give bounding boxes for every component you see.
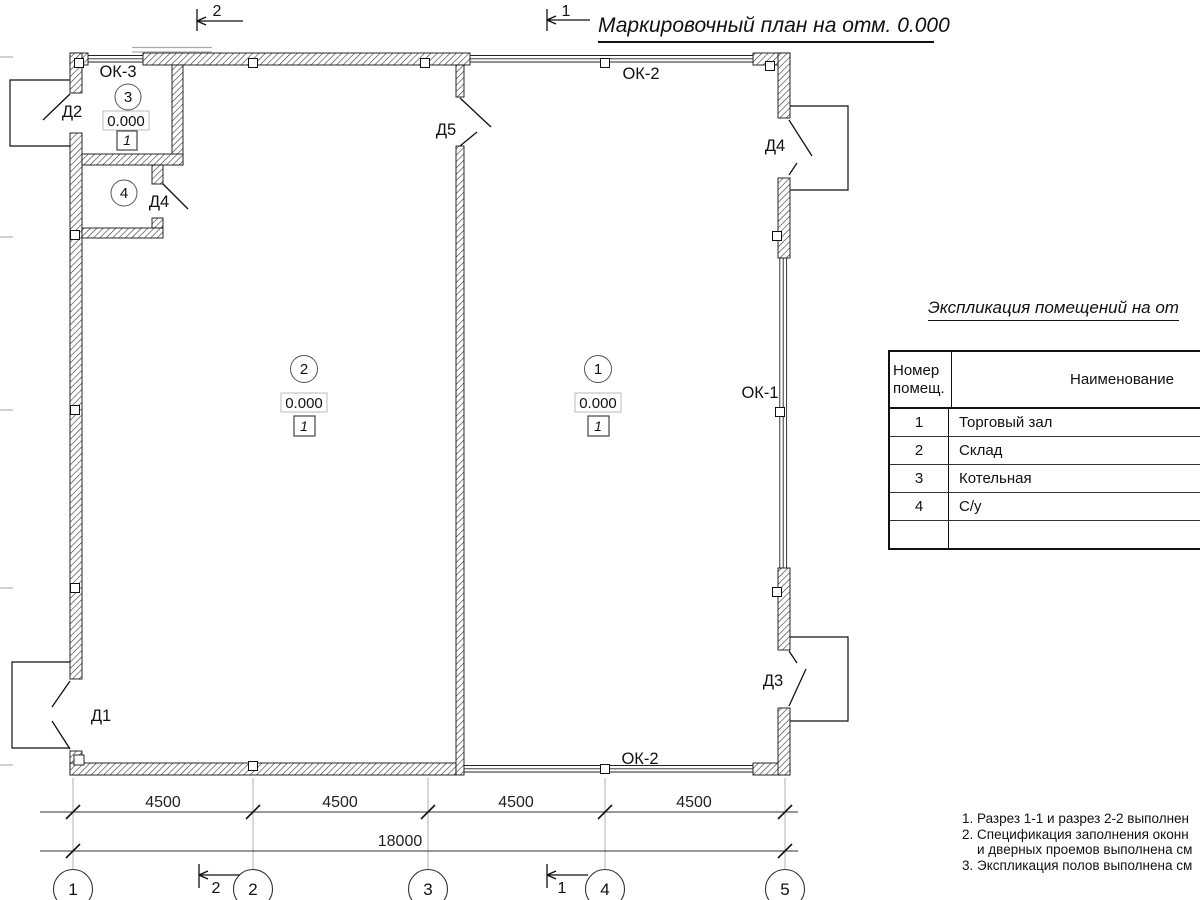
room-1-floor-type: 1: [594, 418, 602, 434]
room-2-elevation: 0.000: [285, 395, 323, 412]
section-markers: [197, 9, 590, 888]
dim-4500-2: 4500: [322, 794, 358, 811]
axis-2: 2: [248, 880, 257, 899]
canopy-line: [132, 48, 212, 53]
notes: 1. Разрез 1-1 и разрез 2-2 выполнен 2. С…: [962, 811, 1192, 873]
label-ok2-top: ОК-2: [622, 65, 659, 83]
room-1-elevation: 0.000: [579, 395, 617, 412]
dim-4500-3: 4500: [498, 794, 534, 811]
row-1-name: Торговый зал: [949, 409, 1200, 436]
spec-table: Номер помещ. Наименование 1 Торговый зал…: [888, 350, 1200, 550]
extension-lines: [73, 778, 785, 869]
table-row: 3 Котельная: [890, 464, 1200, 492]
label-ok3: ОК-3: [99, 63, 136, 81]
label-ok2-bottom: ОК-2: [621, 750, 658, 768]
axis-1: 1: [68, 880, 77, 899]
room-2-number: 2: [300, 361, 308, 378]
header-room-number: Номер помещ.: [890, 352, 952, 407]
section-top-1: 1: [562, 3, 571, 20]
walls: [70, 53, 790, 775]
spec-table-header: Номер помещ. Наименование: [890, 352, 1200, 409]
row-5-name: [949, 521, 1200, 548]
dim-4500-1: 4500: [145, 794, 181, 811]
corner-step: [74, 755, 84, 765]
section-top-2: 2: [213, 3, 222, 20]
label-d1: Д1: [91, 707, 111, 725]
dim-total: 18000: [378, 833, 423, 850]
room-2-floor-type: 1: [300, 418, 308, 434]
row-1-number: 1: [890, 409, 949, 436]
room-3-number: 3: [124, 89, 132, 106]
windows: [88, 56, 787, 773]
row-4-number: 4: [890, 493, 949, 520]
section-bottom-2: 2: [212, 880, 221, 897]
header-room-number-line2: помещ.: [893, 380, 951, 398]
section-bottom-1: 1: [558, 880, 567, 897]
opening-labels: ОК-3 ОК-2 ОК-2 ОК-1 Д1 Д2 Д3 Д4 Д4 Д5: [62, 63, 785, 768]
room-4-number: 4: [120, 185, 128, 202]
axis-3: 3: [423, 880, 432, 899]
label-d2: Д2: [62, 103, 82, 121]
row-3-name: Котельная: [949, 465, 1200, 492]
axis-4: 4: [600, 880, 609, 899]
row-5-number: [890, 521, 949, 548]
axis-ticks: [71, 59, 785, 774]
room-3-floor-type: 1: [123, 132, 131, 148]
note-line-3: и дверных проемов выполнена см: [977, 842, 1192, 858]
spec-table-title: Экспликация помещений на от: [928, 298, 1179, 321]
label-d3: Д3: [763, 672, 783, 690]
room-3-elevation: 0.000: [107, 113, 145, 130]
note-line-2: 2. Спецификация заполнения оконн: [962, 827, 1192, 843]
table-row: 2 Склад: [890, 436, 1200, 464]
label-d4-right: Д4: [765, 137, 785, 155]
porches: [10, 80, 848, 748]
label-d4-inner: Д4: [149, 193, 169, 211]
axis-5: 5: [780, 880, 789, 899]
table-row: 4 С/у: [890, 492, 1200, 520]
dimension-lines: 4500 4500 4500 4500 18000: [40, 794, 798, 858]
row-4-name: С/у: [949, 493, 1200, 520]
axis-numbers: 1 2 3 4 5: [68, 880, 789, 899]
note-line-1: 1. Разрез 1-1 и разрез 2-2 выполнен: [962, 811, 1192, 827]
header-room-number-line1: Номер: [893, 362, 951, 380]
row-2-name: Склад: [949, 437, 1200, 464]
page-title: Маркировочный план на отм. 0.000: [598, 14, 934, 43]
dim-4500-4: 4500: [676, 794, 712, 811]
axis-stubs: [0, 57, 13, 765]
label-d5: Д5: [436, 121, 456, 139]
header-name: Наименование: [952, 352, 1200, 407]
row-2-number: 2: [890, 437, 949, 464]
row-3-number: 3: [890, 465, 949, 492]
table-row-empty: [890, 520, 1200, 548]
table-row: 1 Торговый зал: [890, 409, 1200, 436]
room-1-number: 1: [594, 361, 602, 378]
label-ok1: ОК-1: [741, 384, 778, 402]
note-line-4: 3. Экспликация полов выполнена см: [962, 858, 1192, 874]
